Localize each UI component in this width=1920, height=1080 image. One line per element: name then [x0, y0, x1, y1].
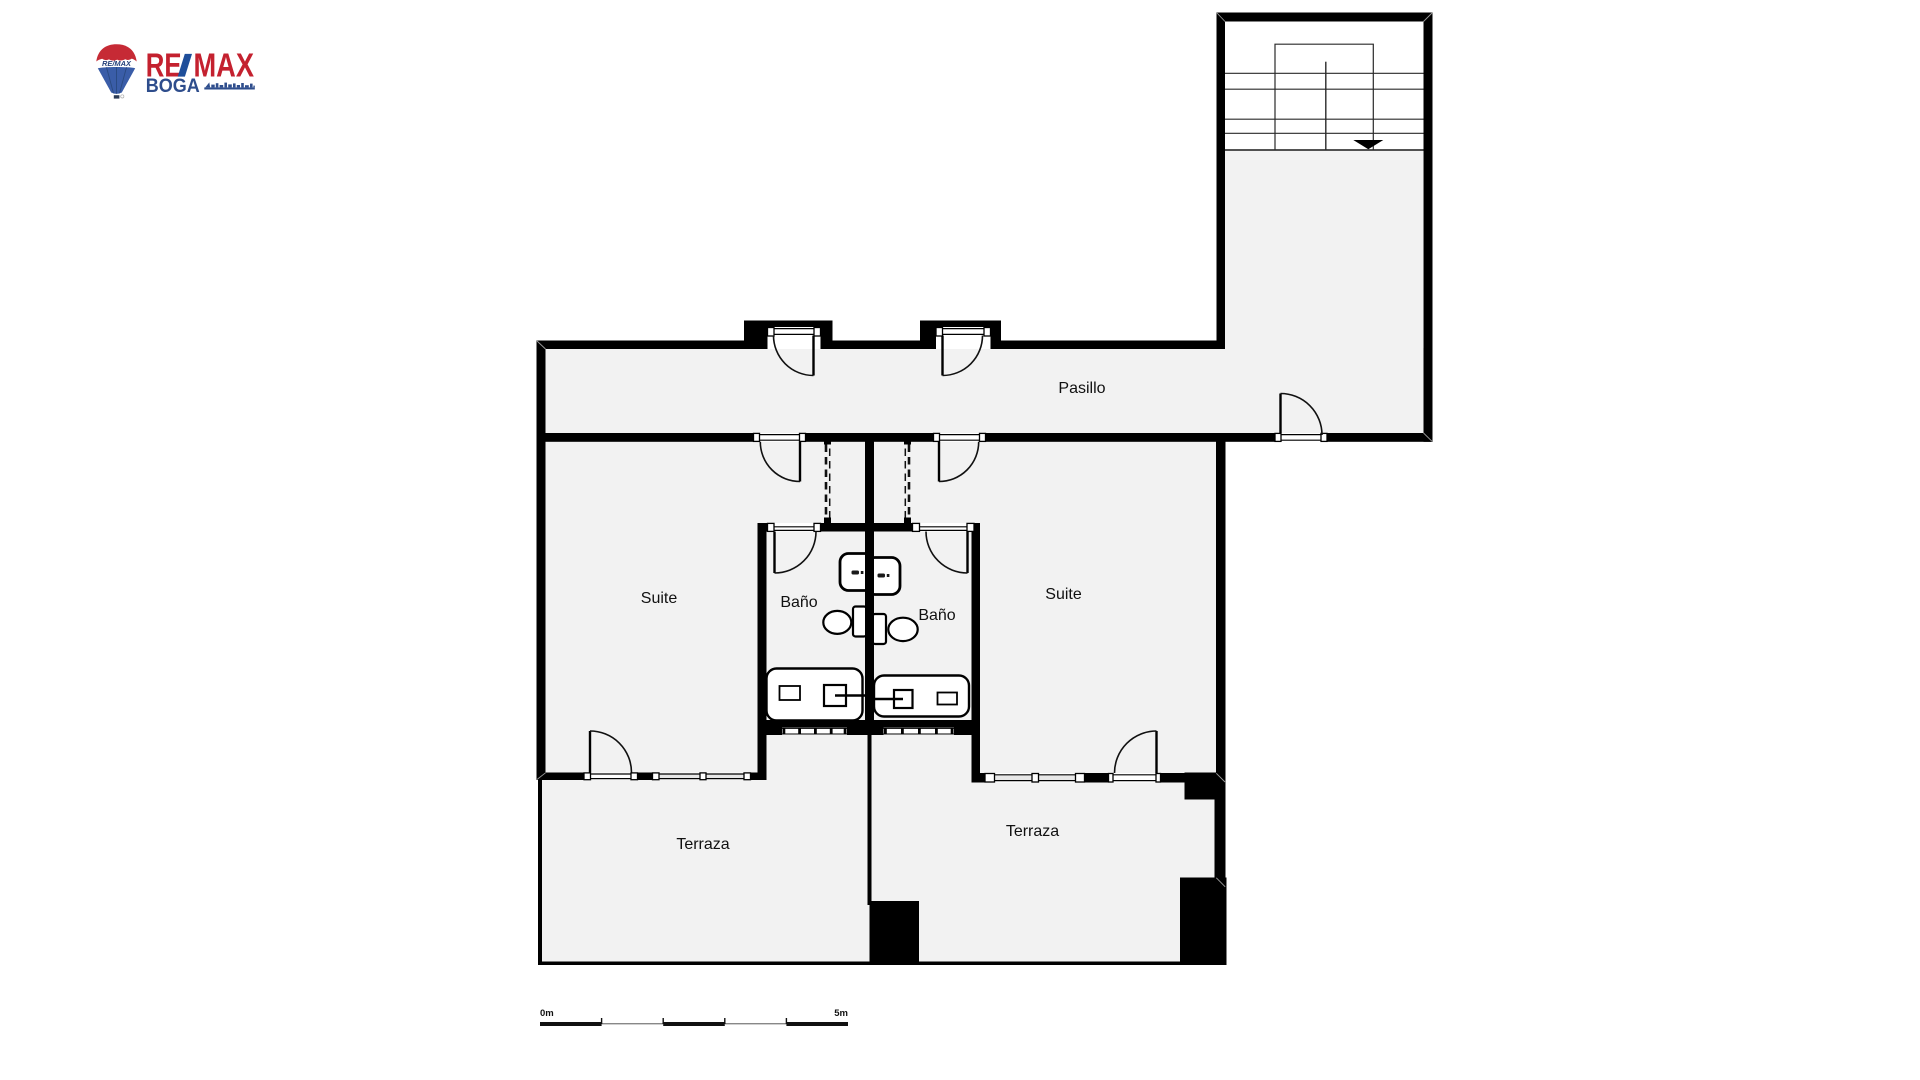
- svg-text:Terraza: Terraza: [1006, 823, 1059, 840]
- svg-text:0m: 0m: [540, 1008, 554, 1019]
- svg-text:Baño: Baño: [780, 594, 817, 611]
- svg-text:BOGA: BOGA: [146, 76, 200, 97]
- svg-text:Terraza: Terraza: [676, 836, 729, 853]
- svg-text:Baño: Baño: [918, 607, 955, 624]
- svg-text:Pasillo: Pasillo: [1058, 380, 1105, 397]
- svg-text:5m: 5m: [834, 1008, 848, 1019]
- svg-text:RE/MAX: RE/MAX: [102, 61, 132, 68]
- svg-text:Suite: Suite: [1045, 586, 1082, 603]
- svg-text:MAX: MAX: [194, 48, 255, 85]
- svg-text:Suite: Suite: [641, 590, 678, 607]
